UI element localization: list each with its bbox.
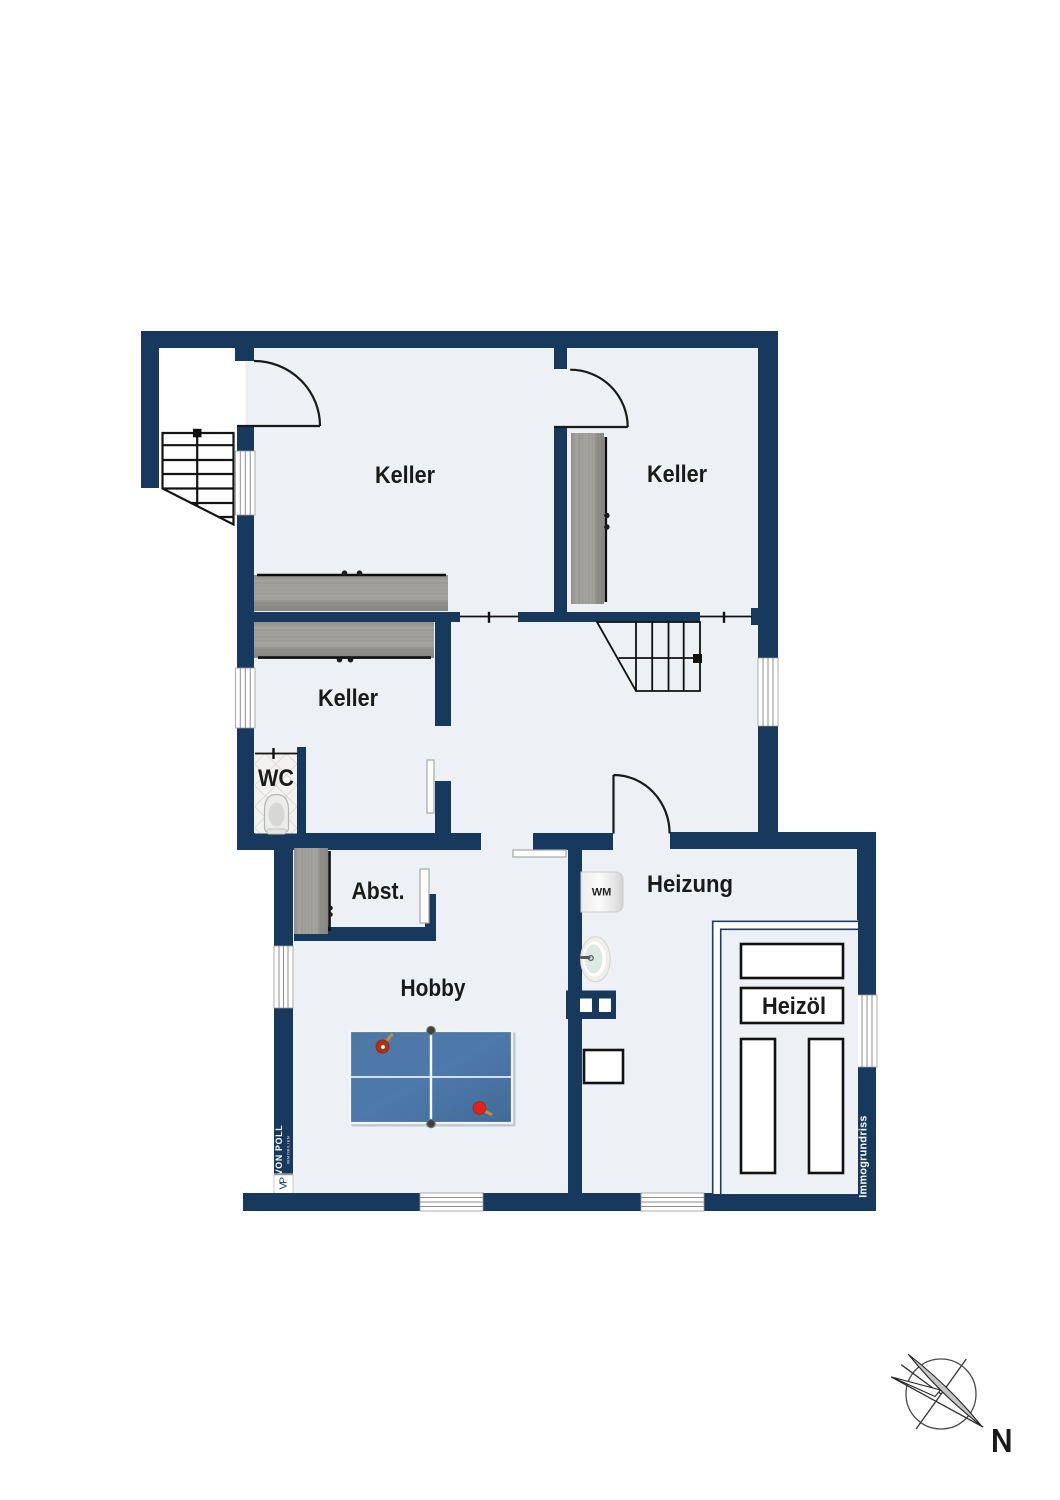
svg-text:WC: WC [258, 765, 294, 792]
svg-text:VON POLL: VON POLL [274, 1125, 284, 1176]
svg-text:WM: WM [592, 887, 612, 899]
svg-text:Keller: Keller [318, 685, 378, 712]
svg-text:Keller: Keller [647, 461, 707, 488]
svg-text:VP: VP [277, 1177, 289, 1190]
svg-text:IMMOBILIEN: IMMOBILIEN [287, 1136, 291, 1165]
svg-text:Heizöl: Heizöl [762, 993, 826, 1020]
svg-text:Heizung: Heizung [647, 871, 733, 898]
svg-text:Hobby: Hobby [401, 975, 466, 1002]
svg-text:Abst.: Abst. [352, 878, 405, 905]
svg-text:Keller: Keller [375, 462, 435, 489]
svg-text:Immogrundriss: Immogrundriss [858, 1115, 870, 1198]
